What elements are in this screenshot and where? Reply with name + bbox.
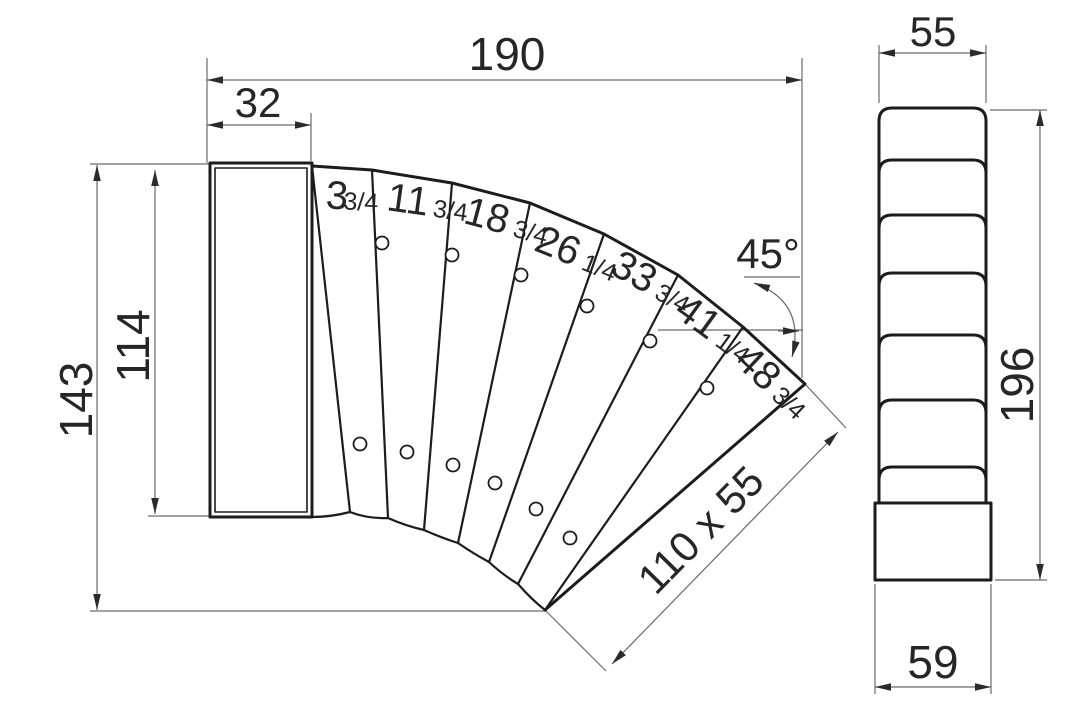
dim-height: 196: [991, 347, 1043, 424]
dim-outlet-size: 110 x 55: [629, 457, 773, 603]
dim-angle: 45°: [736, 230, 800, 277]
segment-angle-labels: 33/4 113/4 183/4 261/4 333/4 411/4 483/4: [325, 173, 820, 427]
front-segments: [875, 108, 991, 580]
drawing-canvas: 33/4 113/4 183/4 261/4 333/4 411/4 483/4…: [0, 0, 1077, 707]
dim-width-bottom: 59: [907, 636, 958, 688]
dim-sleeve-height: 114: [107, 309, 159, 382]
dim-width-top: 55: [910, 8, 957, 55]
sleeve: [210, 163, 312, 517]
dim-sleeve-length: 32: [235, 79, 282, 126]
dim-overall-height: 143: [50, 362, 102, 439]
technical-drawing: 33/4 113/4 183/4 261/4 333/4 411/4 483/4…: [0, 0, 1077, 707]
front-view: 55 196 59: [875, 8, 1047, 694]
front-collar: [875, 503, 991, 580]
dim-total-length: 190: [469, 28, 546, 80]
side-view: 33/4 113/4 183/4 261/4 333/4 411/4 483/4…: [50, 28, 846, 671]
bend-inner-edge: [312, 512, 545, 610]
dimension-lines: [97, 80, 838, 664]
rivet-holes: [354, 237, 714, 545]
